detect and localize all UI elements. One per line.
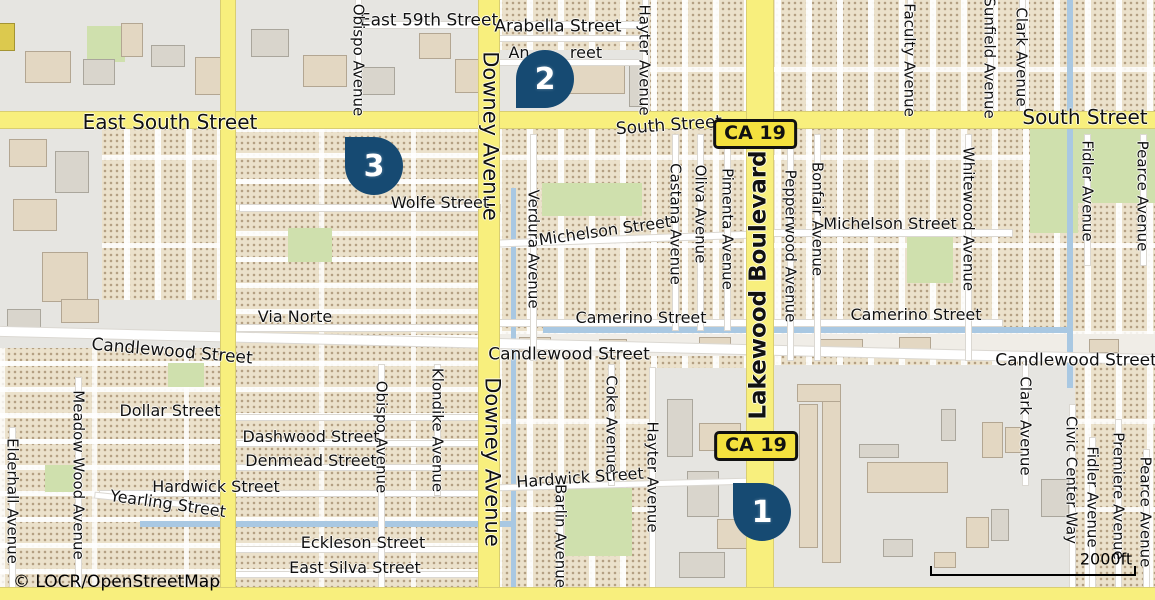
- building: [823, 397, 840, 562]
- marker-number: 3: [364, 149, 385, 184]
- street-label: Denmead Street: [245, 453, 376, 469]
- building: [983, 423, 1002, 457]
- street-label: Camerino Street: [850, 307, 981, 323]
- street-label: Oliva Avenue: [693, 165, 708, 264]
- park-area: [87, 26, 125, 62]
- street-label: East South Street: [83, 112, 258, 132]
- street-label: Klondike Avenue: [430, 368, 445, 492]
- building: [420, 34, 450, 58]
- street-label: Coke Avenue: [604, 375, 619, 473]
- building: [992, 510, 1008, 540]
- street-label: Hayter Avenue: [637, 4, 652, 115]
- map-canvas[interactable]: East 59th StreetArabella StreetAnreetEas…: [0, 0, 1155, 600]
- street-label: Hayter Avenue: [645, 421, 660, 532]
- street-label: Candlewood Street: [995, 353, 1155, 370]
- building: [62, 300, 98, 322]
- map-attribution: © LOCR/OpenStreetMap: [13, 572, 220, 592]
- building: [26, 52, 70, 82]
- street-label: Meadow Wood Avenue: [71, 390, 86, 559]
- marker-number: 2: [535, 62, 556, 97]
- street-label: Barlin Avenue: [553, 484, 568, 588]
- street-label: Eckleson Street: [301, 535, 425, 551]
- waterway: [1067, 0, 1073, 388]
- street-label: Camerino Street: [575, 310, 706, 326]
- building: [680, 553, 724, 577]
- map-marker-2[interactable]: 2: [516, 50, 574, 108]
- street-label: Dollar Street: [119, 403, 220, 419]
- street-label: Candlewood Street: [488, 347, 650, 364]
- building: [942, 410, 955, 440]
- building: [152, 46, 184, 66]
- street-label: Downey Avenue: [482, 377, 503, 547]
- route-badge-ca19: CA 19: [714, 431, 798, 461]
- street-label: Arabella Street: [494, 19, 621, 36]
- building: [56, 152, 88, 192]
- street-label: Lakewood Boulevard: [748, 150, 771, 419]
- building: [884, 540, 912, 556]
- street-label: Pearce Avenue: [1135, 141, 1150, 252]
- building: [935, 553, 955, 567]
- building: [798, 385, 840, 401]
- route-badge-ca19: CA 19: [713, 119, 797, 149]
- street-label: reet: [570, 45, 602, 61]
- building: [84, 60, 114, 84]
- street-label: Michelson Street: [538, 214, 672, 248]
- street-label: Faculty Avenue: [902, 3, 917, 117]
- street-label: Pimenta Avenue: [720, 168, 735, 290]
- building: [860, 445, 898, 457]
- street-label: Elderhall Avenue: [5, 438, 20, 564]
- building: [668, 400, 692, 456]
- street-label: Pearce Avenue: [1138, 457, 1153, 568]
- map-marker-3[interactable]: 3: [345, 137, 403, 195]
- street-label: Hardwick Street: [152, 479, 280, 495]
- street-label: Premiere Avenue: [1111, 432, 1126, 559]
- street-label: Bonfair Avenue: [810, 162, 825, 276]
- park-area: [168, 363, 204, 387]
- map-ground-layer: East 59th StreetArabella StreetAnreetEas…: [0, 0, 1155, 600]
- street-label: Civic Center Way: [1064, 416, 1079, 544]
- road: [230, 415, 490, 420]
- park-area: [288, 228, 332, 262]
- street-label: Sunfield Avenue: [982, 0, 997, 119]
- street-label: Whitewood Avenue: [961, 147, 976, 291]
- street-label: Via Norte: [258, 309, 332, 325]
- waterway: [140, 521, 516, 527]
- street-label: Wolfe Street: [391, 195, 489, 211]
- street-label: South Street: [1022, 107, 1147, 127]
- street-label: Fidler Avenue: [1085, 446, 1100, 547]
- street-label: South Street: [615, 114, 722, 138]
- street-label: Obispo Avenue: [374, 381, 389, 494]
- road: [495, 36, 645, 41]
- waterway: [543, 327, 1073, 333]
- street-label: Dashwood Street: [242, 429, 379, 445]
- building: [304, 56, 346, 86]
- street-label: Verdura Avenue: [526, 189, 541, 308]
- building: [800, 405, 817, 547]
- park-area: [565, 488, 632, 556]
- street-label: East 59th Street: [360, 13, 498, 30]
- waterway: [511, 188, 516, 598]
- building: [252, 30, 288, 56]
- map-marker-1[interactable]: 1: [733, 483, 791, 541]
- street-label: Fidler Avenue: [1080, 140, 1095, 241]
- street-label: Clark Avenue: [1014, 7, 1029, 106]
- street-label: Michelson Street: [823, 216, 956, 232]
- street-label: Obispo Avenue: [351, 4, 366, 117]
- park-area: [542, 183, 642, 216]
- street-label: Clark Avenue: [1018, 376, 1033, 475]
- building: [967, 518, 988, 547]
- street-label: East Silva Street: [289, 560, 421, 576]
- building: [10, 140, 46, 166]
- park-area: [907, 237, 953, 283]
- scale-bar-label: 2000ft: [1080, 550, 1132, 569]
- marker-number: 1: [752, 495, 773, 530]
- building: [14, 200, 56, 230]
- building: [0, 24, 14, 50]
- street-label: Pepperwood Avenue: [783, 170, 798, 323]
- building: [868, 463, 947, 492]
- building: [43, 253, 87, 301]
- building: [122, 24, 142, 56]
